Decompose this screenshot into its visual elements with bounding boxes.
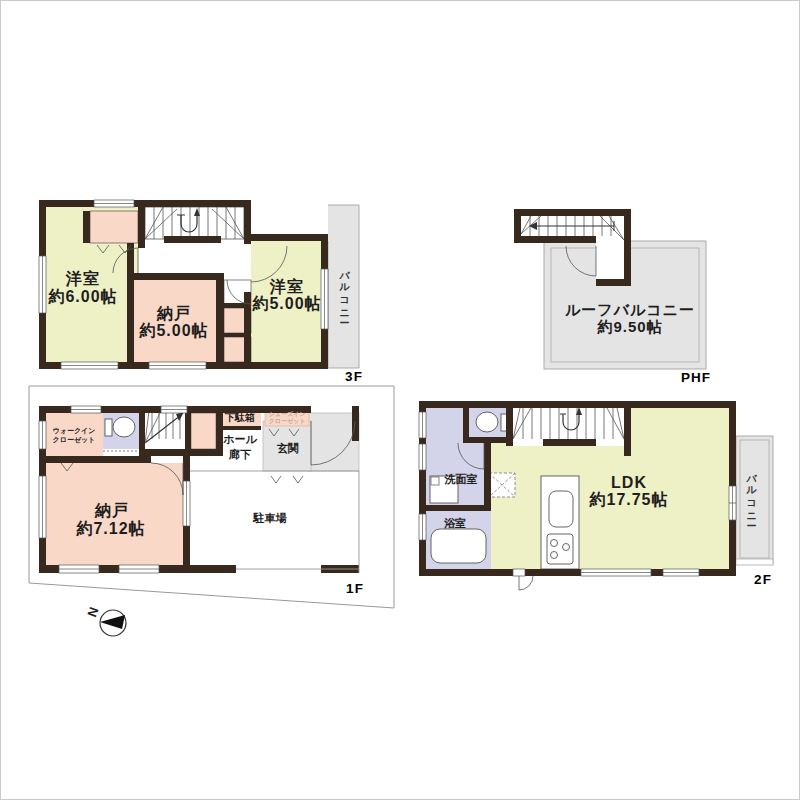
kitchen-island-icon xyxy=(541,476,579,569)
floor-label-2f: 2F xyxy=(754,573,772,587)
compass-icon xyxy=(100,610,126,636)
balcony-label-3f: バルコニー xyxy=(337,263,351,318)
room-label-western6-area: 約6.00帖 xyxy=(48,289,117,305)
sink-icon xyxy=(549,491,573,527)
washroom-label: 洗面室 xyxy=(445,474,478,485)
room-label-ldk-area: 約17.75帖 xyxy=(589,492,668,508)
plan-1f: ウォークイン クローゼット 下駄箱 シューズイン クローゼット ホール 廊下 玄… xyxy=(21,381,411,651)
stairs-3f-icon xyxy=(145,207,244,239)
room-label-western5-name: 洋室 xyxy=(270,279,304,295)
toilet-icon-1f xyxy=(105,417,135,437)
hall-label-line2: 廊下 xyxy=(229,449,251,460)
porch-area xyxy=(308,413,359,471)
room-label-roof-balcony-name: ルーフバルコニー xyxy=(565,302,695,317)
room-label-storage7-area: 約7.12帖 xyxy=(76,521,145,537)
room-label-western5-area: 約5.00帖 xyxy=(252,296,321,312)
under-stair-closet xyxy=(191,413,216,449)
room-label-storage5-name: 納戸 xyxy=(157,306,191,322)
entrance-label: 玄関 xyxy=(277,443,299,454)
room-label-roof-balcony-area: 約9.50帖 xyxy=(597,319,662,334)
walk-in-closet-area xyxy=(46,413,103,456)
room-label-western6-name: 洋室 xyxy=(66,271,100,287)
toilet-icon-2f xyxy=(476,412,508,432)
balcony-label-2f: バルコニー xyxy=(744,466,758,521)
dashed-storage-square xyxy=(489,473,515,497)
stairs-1f-icon xyxy=(145,409,185,443)
bathroom-label: 浴室 xyxy=(444,518,466,529)
floor-label-1f: 1F xyxy=(346,582,364,596)
wic-label-line1: ウォークイン xyxy=(53,427,96,434)
wic-label-line2: クローゼット xyxy=(53,436,96,443)
floorplan-canvas: 洋室 約6.00帖 納戸 約5.00帖 洋室 約5.00帖 バルコニー 3F xyxy=(0,0,800,800)
room-label-storage5-area: 約5.00帖 xyxy=(139,323,208,339)
room-label-ldk-name: LDK xyxy=(611,475,647,491)
floorplan-1f-drawing xyxy=(21,381,411,651)
sic-label-line2: クローゼット xyxy=(269,418,306,424)
shoe-cabinet-label: 下駄箱 xyxy=(225,413,255,423)
bathtub-icon xyxy=(431,529,486,563)
plan-3f: 洋室 約6.00帖 納戸 約5.00帖 洋室 約5.00帖 バルコニー 3F xyxy=(31,196,371,388)
hall-label-line1: ホール xyxy=(223,434,257,445)
sic-label-line1: シューズイン xyxy=(269,411,306,417)
closet-3f xyxy=(90,211,138,243)
plan-2f: 洗面室 浴室 LDK 約17.75帖 バルコニー 2F xyxy=(411,396,791,596)
room-label-storage7-name: 納戸 xyxy=(95,503,129,519)
plan-phf: ルーフバルコニー 約9.50帖 PHF xyxy=(506,196,796,391)
floorplan-phf-drawing xyxy=(506,196,796,391)
parking-label: 駐車場 xyxy=(254,513,287,524)
floor-label-phf: PHF xyxy=(681,371,711,385)
